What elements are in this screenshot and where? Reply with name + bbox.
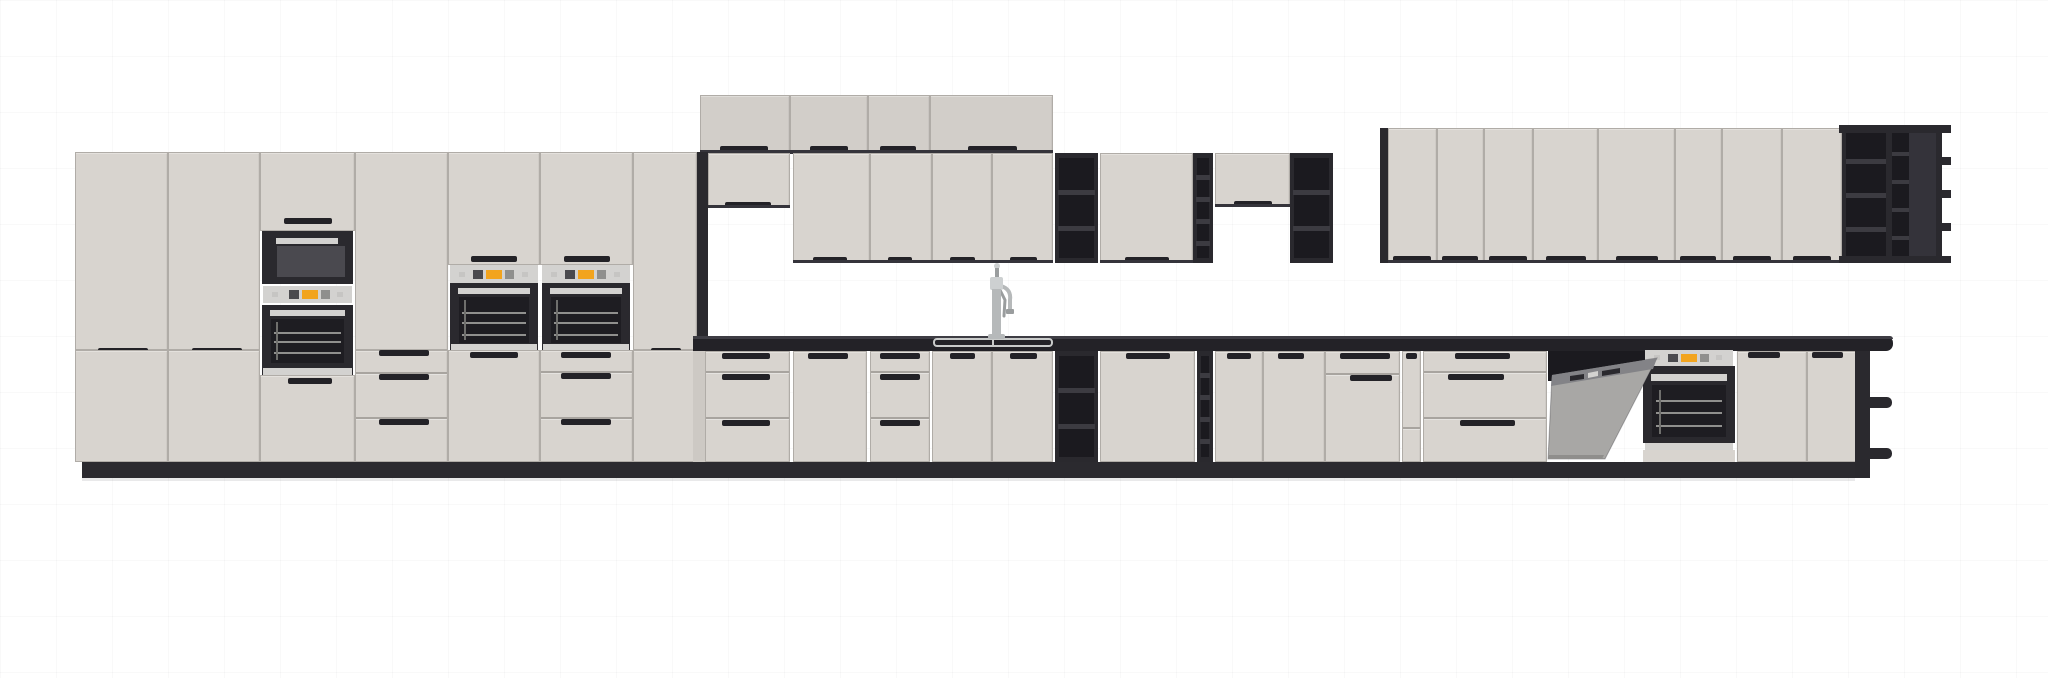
wall-door-2: [870, 153, 932, 263]
wall-slot-shelf-shelf-2: [1196, 219, 1210, 224]
end-shelf-tab-1: [1868, 397, 1892, 408]
dishwasher-door-base: [1548, 455, 1604, 459]
base-door-3: [1215, 351, 1263, 462]
tall-cab-door-4a-handle: [471, 256, 517, 262]
dishwasher-cavity: [1548, 351, 1647, 381]
tall-cab-door-5a-handle: [564, 256, 610, 262]
tap-spray-wand: [1000, 290, 1005, 316]
wall-oven-right-part-3: [597, 270, 606, 279]
base-drawers-2: [870, 351, 930, 462]
tall-cab-door-1b: [75, 350, 168, 462]
oven-tower-top-door-handle: [284, 218, 332, 224]
base-drawers-3-handle-1: [1350, 375, 1392, 381]
tall-cab-door-6b: [633, 350, 697, 462]
wall-oven-right-part-8: [551, 297, 621, 343]
base-drawers-4-handle-0: [1455, 353, 1510, 359]
built-in-oven-base-part-5: [1716, 355, 1722, 360]
tall-cab-door-2a: [168, 152, 260, 350]
wall-oven-left-part-11: [462, 334, 526, 336]
base-drawers-1-handle-1: [722, 374, 770, 380]
wall-grid-shelf-unit-part-2: [1846, 159, 1886, 164]
narrow-base-unit: [1402, 351, 1421, 462]
wall-grid-shelf-unit-part-4: [1846, 227, 1886, 232]
narrow-base-unit-handle-0: [1406, 353, 1417, 359]
base-drawers-4: [1423, 351, 1547, 462]
tall-cab-door-4a: [448, 152, 540, 265]
oven-tower-bottom-door-handle: [288, 378, 332, 384]
wall-open-shelf-2-shelf-1: [1293, 226, 1330, 231]
tall-cab-door-2b: [168, 350, 260, 462]
wall-grid-shelf-unit-part-15: [1942, 190, 1951, 198]
countertop-highlight: [693, 336, 1893, 339]
tower-oven-part-4: [274, 341, 341, 343]
wall-oven-left-part-7: [458, 288, 530, 294]
wall-grid-shelf-unit-part-16: [1942, 223, 1951, 231]
right-wall-door-8: [1782, 128, 1842, 263]
base-door-4-handle: [1278, 353, 1304, 359]
base-door-4: [1263, 351, 1325, 462]
tall-cab-door-5a: [540, 152, 633, 265]
end-shelf-tab-2: [1868, 448, 1892, 459]
tall-cab-drawers-3-handle-0: [379, 350, 429, 356]
wall-door-4: [992, 153, 1053, 263]
base-door-6: [1807, 351, 1857, 462]
right-wall-shadow: [1388, 260, 1842, 263]
wall-oven-right-part-4: [551, 272, 557, 277]
tap-body: [992, 289, 1001, 336]
base-drawers-2-line-0: [871, 371, 929, 373]
wall-door-1: [793, 153, 870, 263]
sink-base-door-left: [932, 351, 992, 462]
tall-cab-door-3a: [355, 152, 448, 350]
wall-door-3: [932, 153, 992, 263]
base-door-1-handle: [808, 353, 848, 359]
oven-tower-bottom-door: [260, 375, 355, 462]
wall-oven-right-part-1: [565, 270, 575, 279]
sink-divider: [992, 339, 994, 346]
short-wall-cab-2-shadow: [1215, 204, 1290, 207]
wall-oven-right-part-9: [554, 312, 618, 314]
built-in-oven-base-part-2: [1681, 354, 1697, 362]
right-wall-door-1: [1388, 128, 1437, 263]
right-wall-door-3: [1484, 128, 1533, 263]
wall-slot-shelf-shelf-3: [1196, 241, 1210, 246]
base-end-panel-left: [693, 351, 705, 462]
floor-shadow: [82, 478, 1855, 481]
short-wall-cab-1: [708, 153, 790, 208]
wall-grid-shelf-unit-part-14: [1942, 157, 1951, 165]
short-wall-cab-2: [1215, 153, 1290, 207]
base-drawers-3-handle-0: [1340, 353, 1390, 359]
wall-oven-left-part-9: [462, 312, 526, 314]
base-slot-shelf-shelf-0: [1200, 373, 1210, 378]
sink-base-door-right: [992, 351, 1053, 462]
wall-grid-shelf-unit-part-3: [1846, 193, 1886, 198]
built-in-microwave-part-5: [302, 290, 318, 299]
built-in-oven-base-part-1: [1668, 354, 1678, 362]
tall-cab-door-1a: [75, 152, 168, 350]
wall-end-panel: [697, 152, 708, 348]
wall-open-shelf-1-shelf-0: [1058, 190, 1095, 195]
base-open-shelf-shelf-0: [1058, 388, 1095, 393]
wall-grid-shelf-unit-part-12: [1839, 125, 1951, 133]
tap-spout: [1001, 286, 1010, 310]
wall-oven-left-part-10: [462, 322, 526, 324]
built-in-oven-base-part-9: [1656, 400, 1722, 402]
wall-oven-left-part-5: [522, 272, 528, 277]
wall-oven-right-part-11: [554, 334, 618, 336]
built-in-microwave-part-6: [321, 290, 330, 299]
wall-grid-shelf-unit-part-7: [1892, 180, 1909, 184]
tall-cab-door-4b: [448, 350, 540, 462]
wall-open-shelf-1-interior: [1059, 158, 1094, 258]
tap-finial: [994, 263, 1000, 269]
base-drawers-4-line-0: [1424, 371, 1546, 373]
base-drawers-3: [1325, 351, 1400, 462]
base-drawers-1-handle-0: [722, 353, 770, 359]
tower-oven-part-5: [274, 352, 341, 354]
wall-slot-shelf-shelf-1: [1196, 197, 1210, 202]
tall-cab-drawers-3-handle-1: [379, 374, 429, 380]
wall-oven-right-part-5: [614, 272, 620, 277]
base-door-5-handle: [1748, 352, 1780, 358]
wall-grid-shelf-unit-part-13: [1839, 256, 1951, 263]
tower-oven-part-7: [263, 368, 352, 375]
wall-oven-left-part-2: [486, 270, 502, 279]
wall-open-shelf-2-shelf-0: [1293, 190, 1330, 195]
base-door-2: [1100, 351, 1195, 462]
tower-oven-part-1: [270, 310, 345, 316]
top-row-door-4: [930, 95, 1053, 152]
right-wall-door-4: [1533, 128, 1598, 263]
base-drawers-1: [705, 351, 790, 462]
base-slot-shelf-shelf-2: [1200, 417, 1210, 422]
top-row-door-1: [700, 95, 790, 152]
base-door-5: [1737, 351, 1807, 462]
built-in-oven-base-part-8: [1652, 385, 1726, 437]
top-row-door-3: [868, 95, 930, 152]
base-open-shelf-interior: [1059, 356, 1094, 457]
base-drawers-4-line-1: [1424, 417, 1546, 419]
built-in-oven-base-part-12: [1659, 390, 1661, 434]
sink-base-door-left-handle: [950, 353, 975, 359]
wall-door-5-shadow: [1100, 260, 1193, 263]
base-drawers-1-line-0: [706, 371, 789, 373]
base-door-2-handle: [1126, 353, 1170, 359]
wall-open-shelf-1-shelf-1: [1058, 226, 1095, 231]
plinth: [82, 462, 1855, 478]
short-wall-cab-1-shadow: [708, 205, 790, 208]
built-in-microwave-part-2: [277, 246, 345, 277]
built-in-oven-base-part-4: [1654, 355, 1660, 360]
built-in-oven-base-part-3: [1700, 354, 1709, 362]
built-in-oven-base-part-11: [1656, 425, 1722, 427]
wall-oven-right-part-7: [550, 288, 622, 294]
built-in-microwave-part-4: [289, 290, 299, 299]
wall-slot-shelf-shelf-0: [1196, 175, 1210, 180]
wall-oven-right-part-12: [556, 300, 558, 340]
tall-cab-drawers-3-handle-2: [379, 419, 429, 425]
narrow-base-unit-line-0: [1403, 427, 1420, 429]
wall-oven-left-part-3: [505, 270, 514, 279]
base-door-3-handle: [1227, 353, 1251, 359]
wall-open-shelf-2-interior: [1294, 158, 1329, 258]
base-slot-shelf-shelf-3: [1200, 439, 1210, 444]
tall-cab-drawers-3: [355, 350, 448, 462]
built-in-oven-base-part-13: [1645, 443, 1733, 450]
wall-grid-shelf-unit-part-9: [1892, 236, 1909, 240]
built-in-microwave-part-7: [272, 292, 278, 297]
wall-grid-shelf-unit-part-6: [1892, 152, 1909, 156]
right-wall-door-2: [1437, 128, 1484, 263]
tap-head: [990, 277, 1003, 290]
base-drawers-1-line-1: [706, 417, 789, 419]
tall-cab-door-4b-handle: [470, 352, 518, 358]
sink-base-door-right-handle: [1010, 353, 1037, 359]
right-wall-end-panel: [1380, 128, 1388, 263]
base-drawers-1-handle-2: [722, 420, 770, 426]
base-open-shelf-shelf-1: [1058, 424, 1095, 429]
base-drawers-2-line-1: [871, 417, 929, 419]
right-wall-door-7: [1722, 128, 1782, 263]
base-drawers-4-handle-2: [1460, 420, 1515, 426]
tall-cab-door-6a: [633, 152, 697, 350]
wall-oven-left-part-1: [473, 270, 483, 279]
wall-oven-left-part-12: [464, 300, 466, 340]
right-wall-door-6: [1675, 128, 1722, 263]
tall-cab-drawers-5-handle-2: [561, 419, 611, 425]
tap-spout-tip: [1006, 309, 1014, 314]
base-slot-shelf-shelf-1: [1200, 395, 1210, 400]
tall-cab-drawers-5-handle-0: [561, 352, 611, 358]
wall-oven-left-part-8: [459, 297, 529, 343]
wall-oven-right-part-2: [578, 270, 594, 279]
wall-oven-right-part-10: [554, 322, 618, 324]
wall-grid-shelf-unit-part-8: [1892, 208, 1909, 212]
tap-stem: [995, 268, 999, 278]
tower-oven-part-3: [274, 332, 341, 334]
base-drawers-2-handle-2: [880, 420, 920, 426]
wall-door-5: [1100, 153, 1193, 263]
built-in-microwave-part-1: [276, 238, 338, 244]
tall-cab-drawers-5-handle-1: [561, 373, 611, 379]
wall-row-shadow: [793, 260, 1053, 263]
built-in-oven-base-part-10: [1656, 412, 1722, 414]
tall-cab-drawers-5: [540, 350, 633, 462]
base-drawers-2-handle-1: [880, 374, 920, 380]
base-drawers-4-handle-1: [1448, 374, 1504, 380]
tower-oven-part-6: [276, 322, 278, 360]
right-wall-door-5: [1598, 128, 1675, 263]
kitchen-elevation-render: [0, 0, 2048, 678]
base-door-1: [793, 351, 867, 462]
top-row-door-2: [790, 95, 868, 152]
built-in-oven-base-part-7: [1651, 374, 1727, 381]
built-in-microwave-part-8: [337, 292, 343, 297]
base-door-6-handle: [1812, 352, 1843, 358]
base-drawers-2-handle-0: [880, 353, 920, 359]
wall-oven-left-part-4: [459, 272, 465, 277]
